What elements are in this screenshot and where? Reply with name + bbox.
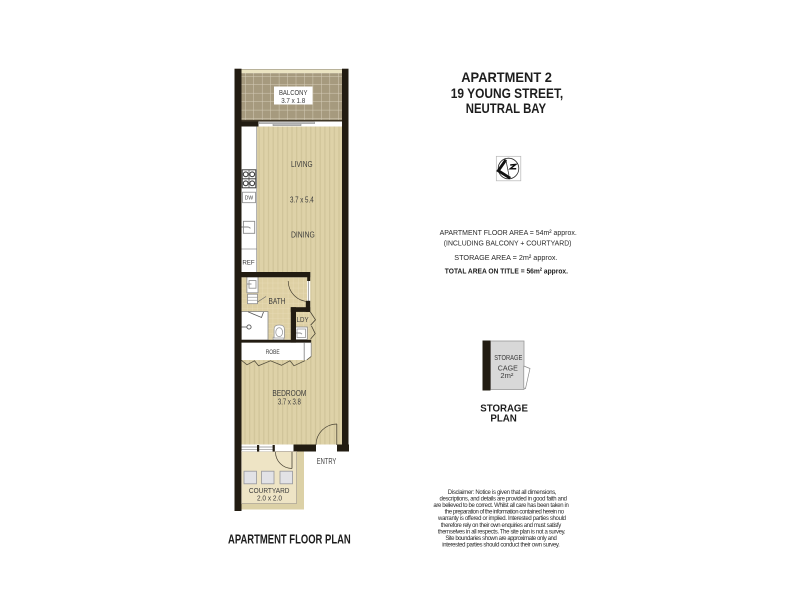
svg-text:3.7 x 3.8: 3.7 x 3.8: [278, 397, 301, 406]
svg-text:BATH: BATH: [269, 297, 286, 306]
svg-text:TOTAL AREA ON TITLE = 56m² app: TOTAL AREA ON TITLE = 56m² approx.: [445, 267, 568, 276]
svg-text:LDY: LDY: [297, 317, 309, 324]
svg-text:2m²: 2m²: [500, 371, 514, 380]
svg-text:LIVING: LIVING: [291, 160, 313, 169]
svg-text:the preparation of the informa: the preparation of the information conta…: [445, 510, 565, 516]
svg-text:NEUTRAL BAY: NEUTRAL BAY: [466, 100, 547, 116]
svg-text:(INCLUDING BALCONY + COURTYARD: (INCLUDING BALCONY + COURTYARD): [444, 238, 572, 247]
svg-text:Site boundaries shown are appr: Site boundaries shown are approximate on…: [445, 536, 556, 542]
svg-text:STORAGE AREA = 2m² approx.: STORAGE AREA = 2m² approx.: [454, 253, 557, 262]
svg-text:3.7 x 5.4: 3.7 x 5.4: [290, 196, 314, 205]
svg-text:2.0 x 2.0: 2.0 x 2.0: [257, 494, 282, 503]
svg-text:APARTMENT FLOOR PLAN: APARTMENT FLOOR PLAN: [228, 532, 351, 547]
svg-text:DINING: DINING: [291, 231, 315, 240]
svg-text:descriptions, and details are: descriptions, and details are provided i…: [439, 496, 567, 502]
svg-text:therefore rely on their own en: therefore rely on their own enquiries an…: [441, 523, 561, 529]
svg-text:APARTMENT 2: APARTMENT 2: [461, 69, 552, 85]
svg-text:ENTRY: ENTRY: [317, 457, 337, 466]
svg-text:DW: DW: [245, 196, 254, 202]
svg-text:Disclaimer: Notice is given th: Disclaimer: Notice is given that all dim…: [448, 490, 557, 496]
svg-text:19 YOUNG STREET,: 19 YOUNG STREET,: [451, 85, 564, 101]
svg-text:warranty is offered or implied: warranty is offered or implied. Interest…: [437, 516, 566, 522]
svg-text:ROBE: ROBE: [266, 349, 280, 356]
svg-text:REF: REF: [242, 259, 255, 266]
svg-text:are believed to be correct. Wh: are believed to be correct. Whilst all c…: [433, 503, 568, 509]
svg-text:3.7 x 1.8: 3.7 x 1.8: [281, 96, 305, 105]
svg-text:PLAN: PLAN: [490, 414, 517, 425]
svg-text:interested parties should cond: interested parties should conduct their …: [442, 543, 560, 549]
svg-text:STORAGE: STORAGE: [494, 353, 522, 362]
svg-text:APARTMENT FLOOR AREA = 54m² ap: APARTMENT FLOOR AREA = 54m² approx.: [440, 228, 577, 237]
svg-text:themselves in all respects. Th: themselves in all respects. The site pla…: [438, 529, 566, 535]
